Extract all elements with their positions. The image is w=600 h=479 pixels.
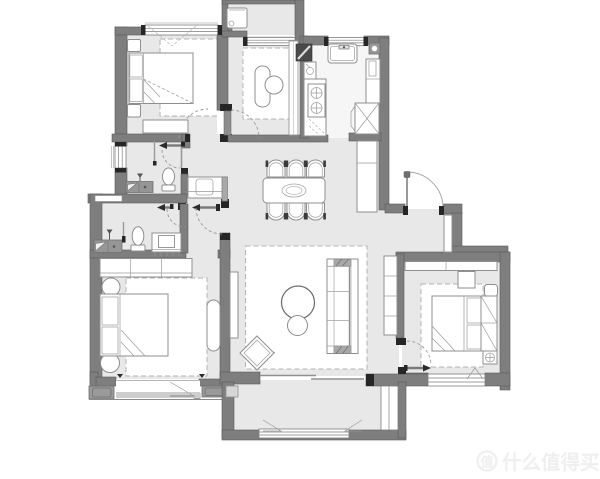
svg-text:什么值得买: 什么值得买 <box>502 451 600 474</box>
svg-text:值: 值 <box>481 455 494 470</box>
